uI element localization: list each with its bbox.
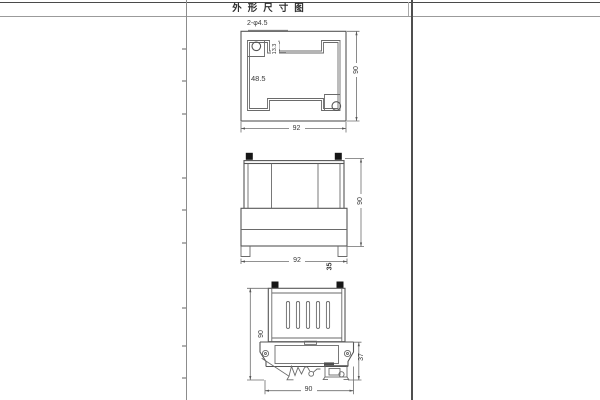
dim-side-clip-height: 37 (358, 350, 366, 364)
frame-tick (182, 48, 186, 50)
dimension-drawing-page: 外形尺寸图 (0, 0, 600, 400)
title-cell-right-border (408, 2, 409, 17)
dim-side-height: 90 (258, 327, 266, 341)
frame-tick (182, 377, 186, 379)
frame-tick (182, 80, 186, 82)
top-view-drawing (228, 18, 373, 140)
dim-top-height: 90 (353, 63, 361, 77)
front-view-drawing (235, 148, 370, 270)
dim-top-notch-depth: 13.3 (271, 42, 279, 56)
dim-front-depth: 35 (326, 259, 335, 273)
title-bar-underline (0, 16, 600, 17)
frame-right-border (411, 0, 413, 400)
frame-tick (182, 242, 186, 244)
frame-tick (182, 177, 186, 179)
dim-top-inner: 48.5 (251, 75, 273, 83)
frame-tick (182, 307, 186, 309)
hole-callout-label: 2-φ4.5 (247, 20, 289, 28)
dim-front-height: 90 (357, 194, 365, 208)
frame-tick (182, 209, 186, 211)
dim-side-width: 90 (301, 386, 317, 394)
frame-left-border (186, 0, 187, 400)
frame-tick (182, 113, 186, 115)
dim-top-width: 92 (289, 125, 305, 133)
frame-tick (182, 345, 186, 347)
dim-front-width: 92 (289, 257, 305, 265)
page-title: 外形尺寸图 (186, 3, 356, 15)
